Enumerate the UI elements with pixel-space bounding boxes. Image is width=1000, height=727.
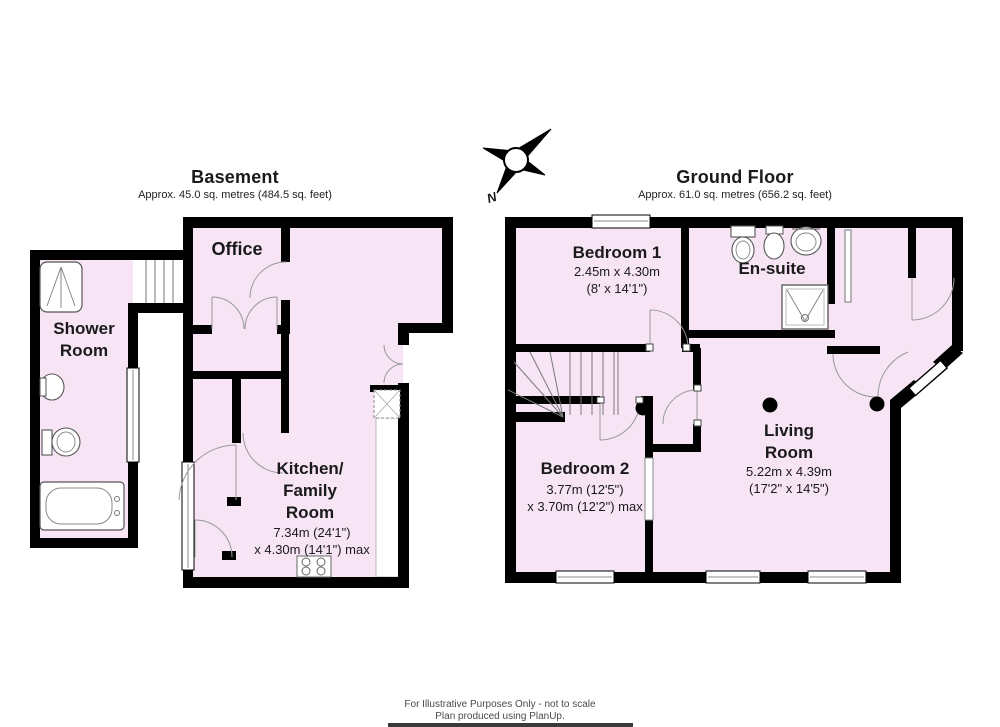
dot	[763, 398, 778, 413]
sink-icon	[40, 374, 64, 400]
kitchen-family-room-dims: 7.34m (24'1") x 4.30m (14'1") max	[212, 525, 412, 559]
appliance-icon	[374, 390, 400, 418]
ensuite-sink-icon	[791, 227, 821, 255]
kitchen-family-room-label: Kitchen/ Family Room	[230, 458, 390, 523]
footer-credit: Plan produced using PlanUp.	[0, 711, 1000, 722]
floorplan-drawing	[0, 0, 1000, 727]
window	[706, 571, 760, 583]
toilet-icon	[42, 428, 80, 456]
ensuite-shower-icon	[782, 285, 828, 329]
window	[127, 368, 139, 462]
floorplan-page: Basement Approx. 45.0 sq. metres (484.5 …	[0, 0, 1000, 727]
shower-room-label: Shower Room	[29, 318, 139, 362]
footer-bar	[388, 723, 633, 727]
living-room-label: Living Room	[709, 420, 869, 464]
footer-disclaimer: For Illustrative Purposes Only - not to …	[0, 699, 1000, 710]
basement-stairs-icon	[146, 260, 173, 303]
dot	[870, 397, 885, 412]
compass-icon	[483, 129, 551, 193]
bedroom1-dims: 2.45m x 4.30m (8' x 14'1")	[537, 264, 697, 298]
bedroom1-label: Bedroom 1	[537, 242, 697, 264]
bedroom2-label: Bedroom 2	[485, 458, 685, 480]
window	[556, 571, 614, 583]
bedroom2-dims: 3.77m (12'5") x 3.70m (12'2") max	[485, 482, 685, 516]
basement-title: Basement	[85, 167, 385, 188]
office-label: Office	[177, 238, 297, 261]
shower-icon	[40, 262, 82, 312]
ground-floor-subtitle: Approx. 61.0 sq. metres (656.2 sq. feet)	[585, 189, 885, 201]
ensuite-bidet-icon	[764, 226, 784, 259]
bath-icon	[40, 482, 124, 530]
ground-floor-title: Ground Floor	[585, 167, 885, 188]
window	[808, 571, 866, 583]
basement-subtitle: Approx. 45.0 sq. metres (484.5 sq. feet)	[85, 189, 385, 201]
stove-icon	[297, 556, 331, 577]
ensuite-label: En-suite	[692, 258, 852, 280]
window	[592, 215, 650, 228]
living-room-dims: 5.22m x 4.39m (17'2" x 14'5")	[709, 464, 869, 498]
